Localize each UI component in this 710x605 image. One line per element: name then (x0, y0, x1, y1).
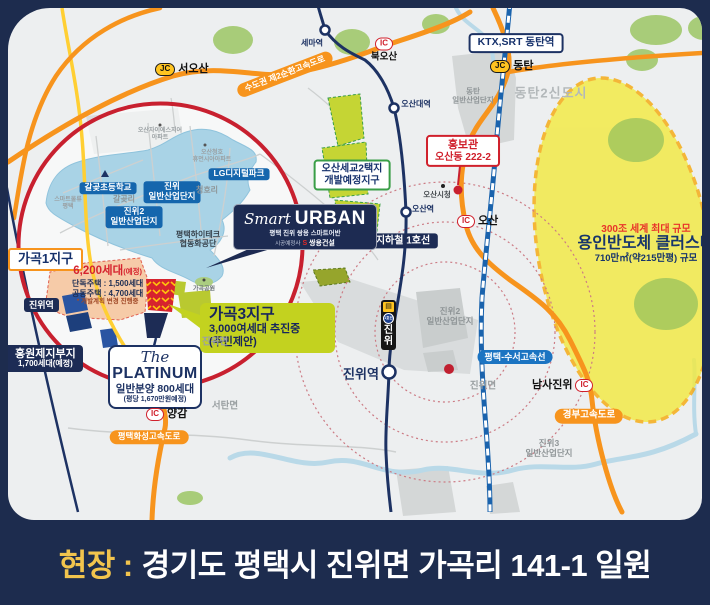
apt1-dot (159, 124, 162, 127)
jinwi2-industrial-gray-label: 진위2일반산업단지 (427, 307, 474, 327)
galgot-school-label: 갈곶초등학교 (80, 182, 137, 194)
cityhall-dot (441, 184, 445, 188)
osan-segyo-box: 오산세교2택지개발예정지구 (314, 160, 391, 191)
jc-dongtan: JC 동탄 (490, 60, 533, 73)
jinwi-station-zone-box: 진위역 (24, 298, 59, 312)
jinwi3-industrial-label: 진위3일반산업단지 (526, 439, 573, 459)
ic-badge: IC (575, 379, 593, 392)
ssangyong-logo-icon: S (302, 240, 307, 247)
cheonghori-label: 청호리 (196, 187, 218, 196)
station-osan-label: 오산역 (412, 206, 434, 215)
banner-address: 경기도 평택시 진위면 가곡리 141-1 일원 (142, 540, 652, 585)
ic-osan: IC 오산 (457, 215, 498, 228)
hitech-complex-label: 평택하이테크협동화공단 (176, 230, 220, 248)
jinwi2-industrial-label: 진위2일반산업단지 (106, 206, 163, 228)
subway-line1-box: 지하철 1호선 (368, 233, 438, 248)
train-icon: ▤ (383, 302, 394, 312)
smart-urban-builder: 시공예정사S쌍용건설 (234, 240, 376, 248)
osan-cityhall-label: 오산시청 (423, 191, 451, 199)
site-parcel-red (146, 279, 176, 312)
gagok-park-dot (203, 279, 206, 282)
station-sema-label: 세마역 (301, 40, 323, 49)
hongbogwan-box: 홍보관 오산동 222-2 (426, 135, 500, 167)
jinwimyeon-label-west: 진위면 (202, 338, 228, 349)
yongin-cluster-callout: 300조 세계 최대 규모 용인반도체 클러스터 710만㎡(약215만평) 규… (578, 224, 702, 264)
station-osandae-label: 오산대역 (401, 101, 430, 110)
ic-namsajinwi: 남사진위 IC (532, 379, 593, 392)
jc-badge: JC (490, 60, 510, 73)
jc-badge: JC (155, 63, 175, 76)
units6200-block: 6,200세대(예정) 단독주택 : 1,500세대 공동주택 : 4,700세… (72, 260, 143, 306)
apartment-label-2: 오산청호휴먼시아아파트 (193, 150, 232, 164)
gyeongbu-expressway-pill: 경부고속도로 (555, 409, 623, 424)
yongin-line1: 300조 세계 최대 규모 (578, 224, 702, 235)
smart-urban-subtitle: 평택 진위 쌍용 스마트어반 (234, 230, 376, 237)
banner-prefix: 현장 : (59, 540, 133, 585)
line1-badge: 1호선 (383, 313, 394, 324)
platinum-name: PLATINUM (110, 366, 200, 382)
ic-osan-label: 오산 (478, 215, 498, 227)
gagok-park-label: 가곡공원 (193, 287, 215, 294)
smart-urban-callout: SmartURBAN 평택 진위 쌍용 스마트어반 시공예정사S쌍용건설 (233, 204, 377, 250)
dongtan2-label: 동탄2신도시 (514, 87, 587, 102)
dongtan-industrial-label: 동탄일반산업단지 (452, 87, 493, 104)
jinwi-vertical-name: 진위 (383, 325, 394, 348)
jinwimyeon-label-east: 진위면 (470, 382, 496, 393)
smart-urban-brand: URBAN (295, 208, 366, 229)
hongwon-site-box: 홍원제지부지 1,700세대(예정) (8, 345, 83, 372)
ktx-srt-dongtan-box: KTX,SRT 동탄역 (469, 33, 564, 53)
station-jinwi-label: 진위역 (343, 368, 379, 383)
apt2-dot (204, 144, 207, 147)
ic-badge: IC (457, 215, 475, 228)
hwaseong-expressway-pill: 평택화성고속도로 (110, 430, 189, 444)
yongin-line2: 용인반도체 클러스터 (578, 235, 702, 253)
lg-digital-park-label: LG디지털파크 (209, 168, 270, 180)
map-panel: 세마역 JC 서오산 수도권 제2순환고속도로 IC 북오산 KTX,SRT 동… (8, 8, 702, 520)
platinum-units: 일반분양 800세대 (110, 384, 200, 396)
galgotri-label: 갈곶리 (113, 196, 135, 205)
jc-dongtan-label: 동탄 (513, 60, 533, 72)
platinum-price: (평당 1,670만원예정) (110, 396, 200, 404)
platinum-callout: The PLATINUM 일반분양 800세대 (평당 1,670만원예정) (108, 345, 202, 409)
suseo-line-pill: 평택-수서고속선 (478, 350, 553, 364)
rail-line1 (317, 8, 406, 512)
ic-badge: IC (146, 408, 164, 421)
jc-seoosan: JC 서오산 (155, 63, 209, 76)
site-banner: 현장 : 경기도 평택시 진위면 가곡리 141-1 일원 (0, 520, 710, 605)
apartment-label-1: 오산자이에스지어아파트 (138, 128, 182, 142)
ic-namsajinwi-label: 남사진위 (532, 379, 572, 391)
site-red-dot (444, 364, 454, 374)
hongbogwan-dot (454, 186, 463, 195)
platinum-the: The (110, 349, 200, 366)
location-map-poster: 세마역 JC 서오산 수도권 제2순환고속도로 IC 북오산 KTX,SRT 동… (0, 0, 710, 605)
jc-seoosan-label: 서오산 (178, 63, 208, 75)
yongin-line3: 710만㎡(약215만평) 규모 (578, 253, 702, 264)
seotanmyeon-label: 서탄면 (212, 402, 238, 413)
gagok3-title: 가곡3지구 (209, 307, 326, 323)
ic-yanggam: IC 양감 (146, 408, 187, 421)
jinwi-industrial-label: 진위일반산업단지 (144, 181, 201, 203)
ic-bukosan-label: 북오산 (371, 53, 397, 64)
jinwi-station-sign: ▤ 1호선 진위 (381, 300, 396, 350)
ic-yanggam-label: 양감 (167, 408, 187, 420)
ic-bukosan-badge: IC (375, 38, 393, 51)
apartment-label-3: 스마트물류평택 (54, 197, 82, 211)
gagok3-units: 3,000여세대 추진중 (209, 323, 326, 336)
smart-urban-script: Smart (244, 210, 291, 228)
